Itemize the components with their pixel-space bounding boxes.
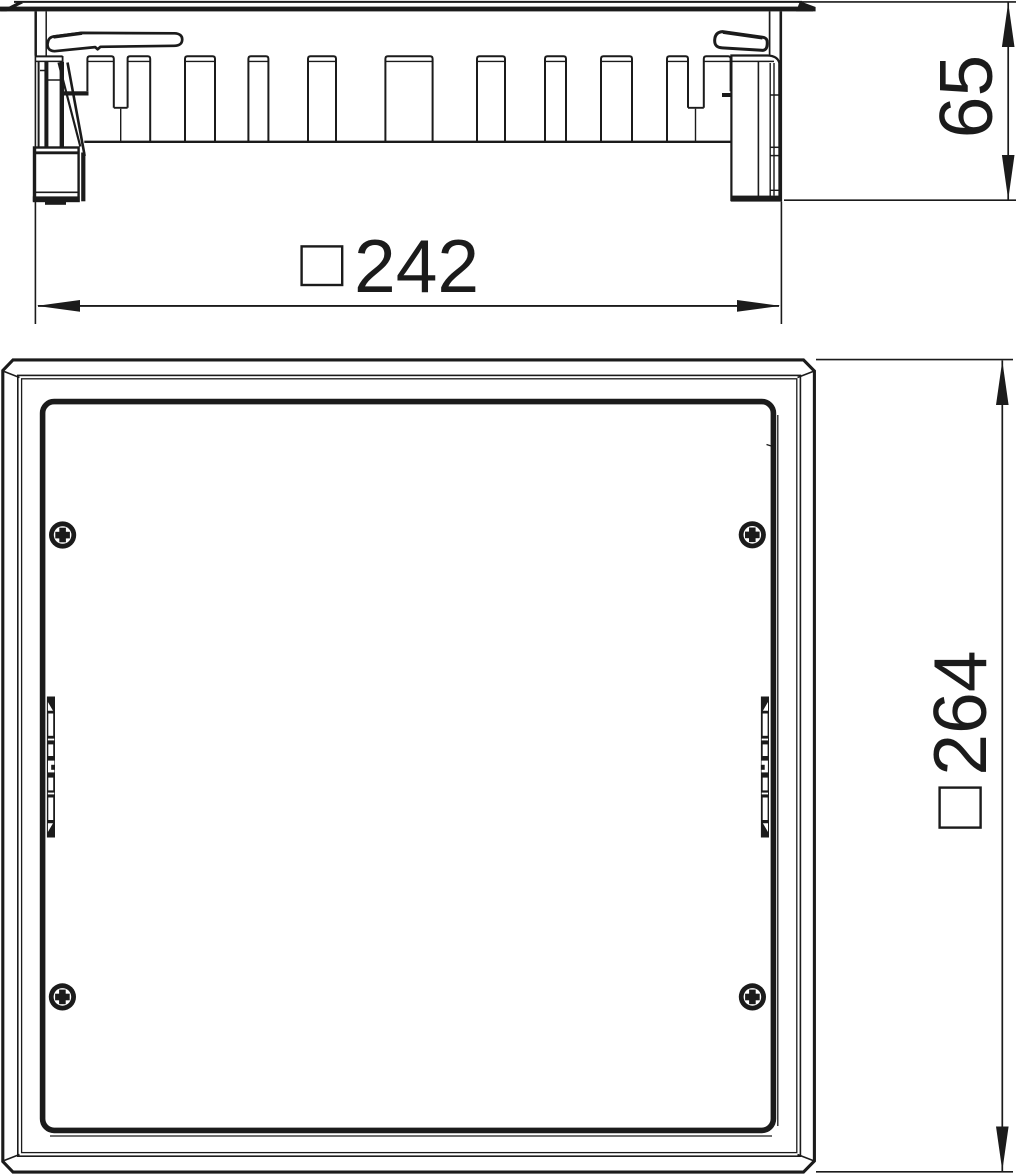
svg-text:65: 65 [924, 55, 1008, 138]
svg-text:264: 264 [918, 650, 1002, 775]
svg-text:242: 242 [354, 224, 479, 308]
